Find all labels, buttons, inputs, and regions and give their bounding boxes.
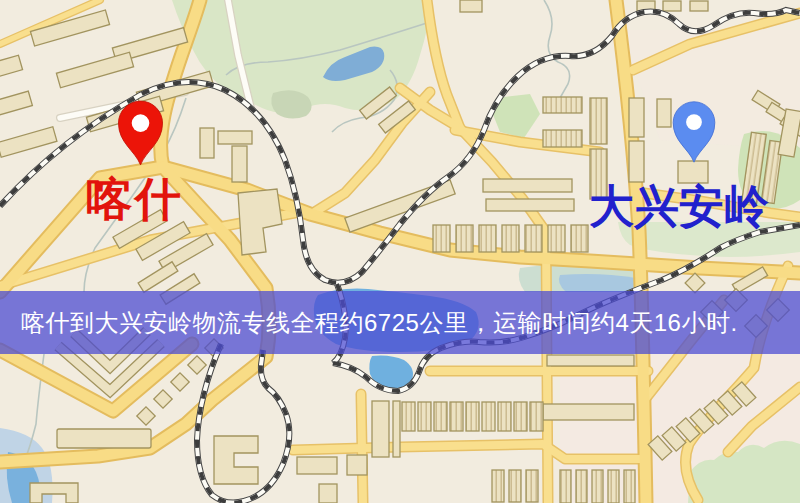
map-root: 喀什 大兴安岭 喀什到大兴安岭物流专线全程约6725公里，运输时间约4天16小时… — [0, 0, 800, 503]
banner-text: 喀什到大兴安岭物流专线全程约6725公里，运输时间约4天16小时. — [0, 307, 738, 339]
map-image — [0, 0, 800, 503]
info-banner: 喀什到大兴安岭物流专线全程约6725公里，运输时间约4天16小时. — [0, 291, 800, 354]
origin-pin-icon — [113, 100, 168, 166]
destination-pin-icon — [669, 99, 719, 165]
destination-label: 大兴安岭 — [589, 184, 769, 229]
origin-label: 喀什 — [86, 176, 184, 222]
